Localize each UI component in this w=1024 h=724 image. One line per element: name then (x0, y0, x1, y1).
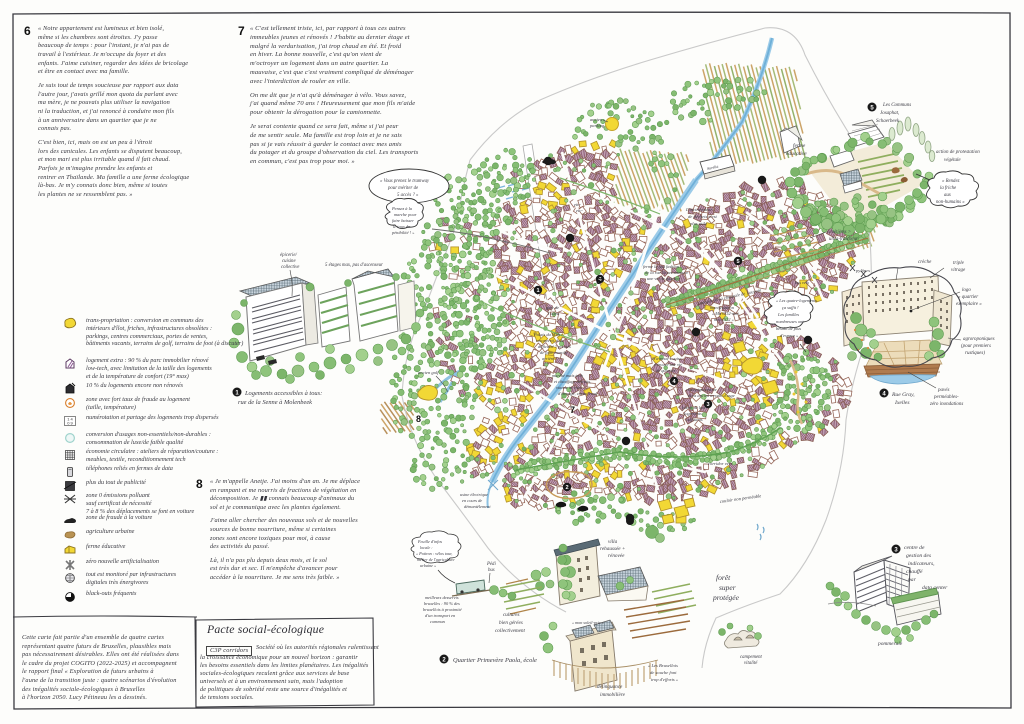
svg-text:agroroponiques: agroroponiques (963, 337, 995, 342)
svg-text:new CO2 »: new CO2 » (714, 317, 734, 322)
svg-text:commun: commun (430, 619, 446, 624)
svg-text:Logements accessibles à tous:: Logements accessibles à tous: (244, 390, 322, 397)
svg-text:de la rue Neuve retrouve: de la rue Neuve retrouve (645, 270, 688, 275)
svg-text:démantèlement: démantèlement (464, 504, 491, 509)
svg-text:ultra-fraîcheur: ultra-fraîcheur (829, 237, 858, 242)
svg-text:cultures: cultures (503, 612, 520, 618)
svg-text:etc-: etc- (576, 208, 583, 213)
svg-text:l'ouest: l'ouest (548, 311, 560, 316)
svg-text:pour mériter de: pour mériter de (387, 186, 419, 191)
svg-text:de souche font: de souche font (650, 670, 677, 675)
svg-text:Les Communs: Les Communs (882, 103, 911, 108)
svg-text:Rue Gray,: Rue Gray, (891, 392, 915, 398)
svg-text:retrouve une vie: retrouve une vie (654, 362, 682, 367)
svg-text:villa: villa (608, 539, 618, 545)
svg-text:ancien: ancien (590, 117, 603, 122)
svg-text:gestion des: gestion des (906, 553, 931, 559)
svg-text:difficulté ? pressés: difficulté ? pressés (538, 344, 571, 349)
svg-text:« quartier: « quartier (958, 295, 978, 300)
svg-text:ferme la fast fashion: ferme la fast fashion (643, 264, 680, 269)
svg-text:Pensez à la: Pensez à la (391, 206, 413, 211)
svg-text:pavés: pavés (937, 388, 949, 393)
svg-text:immobilière: immobilière (600, 692, 626, 698)
svg-text:bruxellois à proximité: bruxellois à proximité (423, 607, 463, 612)
svg-text:de quartier: de quartier (656, 368, 676, 373)
svg-text:Les familles: Les familles (777, 312, 799, 317)
svg-text:Ixelles: Ixelles (894, 400, 910, 406)
svg-text:protégée: protégée (712, 593, 740, 602)
svg-text:cimétières >: cimétières > (827, 230, 851, 235)
svg-text:7: 7 (570, 405, 575, 415)
svg-text:chauffé: chauffé (906, 568, 923, 575)
svg-text:non-humains »: non-humains » (936, 200, 965, 205)
svg-text:« Les quatre-logements: « Les quatre-logements (776, 298, 817, 303)
svg-text:etc-: etc- (574, 202, 581, 207)
svg-text:5: 5 (736, 259, 739, 265)
svg-text:locale :: locale : (420, 545, 433, 550)
svg-text:5 étages max, pas d'ascenseur: 5 étages max, pas d'ascenseur (325, 263, 383, 268)
svg-text:Feuille d'infos: Feuille d'infos (417, 539, 442, 544)
svg-text:bus vélo: bus vélo (795, 280, 810, 285)
svg-text:rue de la Senne à Molenbeek: rue de la Senne à Molenbeek (238, 399, 312, 406)
svg-text:ancien golf: ancien golf (418, 370, 439, 375)
svg-text:faire baisser: faire baisser (392, 218, 414, 223)
svg-text:nombreuses ont: nombreuses ont (776, 319, 804, 324)
svg-text:pénibilité ! »: pénibilité ! » (391, 230, 414, 235)
svg-text:pommeraie: pommeraie (877, 641, 903, 647)
svg-text:data center: data center (922, 585, 948, 591)
svg-text:couloir non perméable: couloir non perméable (719, 493, 761, 504)
svg-text:0 9: 0 9 (67, 421, 73, 426)
svg-text:Quartier Primevère Paola, écol: Quartier Primevère Paola, école (453, 657, 537, 664)
svg-text:viande in-vitro: viande in-vitro (556, 385, 583, 390)
svg-text:et avenue Louise: et avenue Louise (652, 356, 682, 361)
svg-text:rustiques): rustiques) (965, 351, 985, 356)
svg-text:manifestation: manifestation (710, 305, 735, 310)
svg-text:urbaine »: urbaine » (420, 563, 436, 568)
svg-text:collective: collective (281, 265, 300, 270)
svg-text:parking: parking (589, 123, 605, 128)
svg-text:arrière: arrière (542, 356, 554, 361)
svg-text:corridor vert: corridor vert (708, 461, 733, 466)
svg-text:végétale: végétale (944, 158, 961, 163)
svg-text:de faire marche: de faire marche (540, 350, 568, 355)
svg-text:d'un transport en: d'un transport en (425, 613, 456, 618)
svg-text:triple: triple (953, 261, 965, 266)
svg-text:bruxelles : 90 % des: bruxelles : 90 % des (424, 601, 460, 606)
svg-text:« mon soleil-prix »: « mon soleil-prix » (572, 620, 604, 625)
svg-text:rénovée: rénovée (608, 553, 625, 559)
svg-text:le taux de: le taux de (393, 224, 410, 229)
svg-text:métier de l'agriculture: métier de l'agriculture (417, 557, 455, 562)
svg-text:« Les Bruxellois: « Les Bruxellois (648, 663, 678, 668)
svg-text:usine électrique: usine électrique (460, 492, 488, 497)
svg-text:marche pour: marche pour (394, 212, 417, 217)
svg-text:« Vous prenez le tramway: « Vous prenez le tramway (380, 179, 430, 184)
svg-text:dans ancien terrain d'usge: dans ancien terrain d'usge (688, 393, 735, 398)
svg-text:bus: bus (488, 568, 495, 573)
svg-text:suffisants: suffisants (686, 417, 703, 422)
svg-text:super: super (719, 583, 736, 592)
svg-text:zéro inondations: zéro inondations (929, 402, 963, 407)
svg-text:hôtels de luxe >: hôtels de luxe > (682, 405, 710, 410)
svg-text:cuisine: cuisine (282, 259, 296, 264)
svg-text:perméables-: perméables- (933, 395, 959, 400)
svg-text:Palais du Midi :: Palais du Midi : (533, 332, 563, 337)
svg-text:marché mais tech: marché mais tech (552, 373, 584, 378)
svg-text:vitrage: vitrage (951, 268, 966, 273)
svg-text:logements: logements (684, 411, 702, 416)
svg-text:meilleurs desservis: meilleurs desservis (425, 595, 459, 600)
svg-text:crèche: crèche (918, 260, 932, 265)
svg-text:rehaussée +: rehaussée + (600, 546, 625, 552)
svg-text:action de protestation: action de protestation (936, 150, 980, 155)
svg-text:2: 2 (565, 485, 568, 491)
svg-text:collectivement: collectivement (495, 628, 526, 634)
svg-text:forêt: forêt (716, 573, 731, 582)
svg-text:6: 6 (596, 276, 601, 286)
svg-text:gare de: gare de (546, 305, 559, 310)
svg-text:campement: campement (740, 655, 763, 660)
svg-text:vitalité: vitalité (744, 661, 758, 666)
svg-text:aux: aux (944, 193, 952, 198)
svg-text:une vie de quartier: une vie de quartier (647, 276, 681, 281)
svg-text:délinquance: délinquance (597, 684, 623, 690)
svg-text:logo: logo (962, 288, 971, 293)
svg-text:Josaphat,: Josaphat, (880, 111, 899, 116)
svg-text:la friche: la friche (940, 186, 957, 191)
svg-text:5 accès ? »: 5 accès ? » (397, 193, 419, 198)
svg-text:8: 8 (416, 414, 421, 424)
svg-text:besoin de plus: besoin de plus (776, 326, 801, 331)
svg-text:plus utile: plus utile (689, 221, 707, 226)
svg-text:Schaerbeek: Schaerbeek (876, 119, 900, 124)
svg-text:exemplaire »: exemplaire » (956, 302, 982, 307)
svg-text:« Rendez: « Rendez (942, 179, 960, 184)
svg-text:d'espace »: d'espace » (780, 333, 798, 338)
svg-text:champignonnerie: champignonnerie (686, 387, 717, 392)
svg-text:en cours de: en cours de (462, 498, 482, 503)
svg-text:épicerie/: épicerie/ (280, 253, 297, 258)
svg-text:de déchets n'est: de déchets n'est (688, 214, 718, 219)
svg-text:indicateurs,: indicateurs, (908, 561, 935, 567)
svg-text:L'incinérateur: L'incinérateur (685, 207, 712, 212)
svg-text:par: par (907, 577, 917, 583)
svg-text:bien gérées: bien gérées (499, 620, 523, 626)
svg-text:1: 1 (536, 288, 539, 294)
svg-text:ferme: ferme (793, 142, 806, 149)
svg-text:trop d'efforts »: trop d'efforts » (651, 677, 679, 682)
svg-text:Pédi: Pédi (486, 562, 496, 567)
svg-text:(pour premiers: (pour premiers (961, 344, 991, 349)
svg-text:ça suffit !: ça suffit ! (782, 305, 799, 310)
svg-text:éducative: éducative (786, 151, 807, 157)
svg-text:centre de: centre de (904, 545, 925, 551)
